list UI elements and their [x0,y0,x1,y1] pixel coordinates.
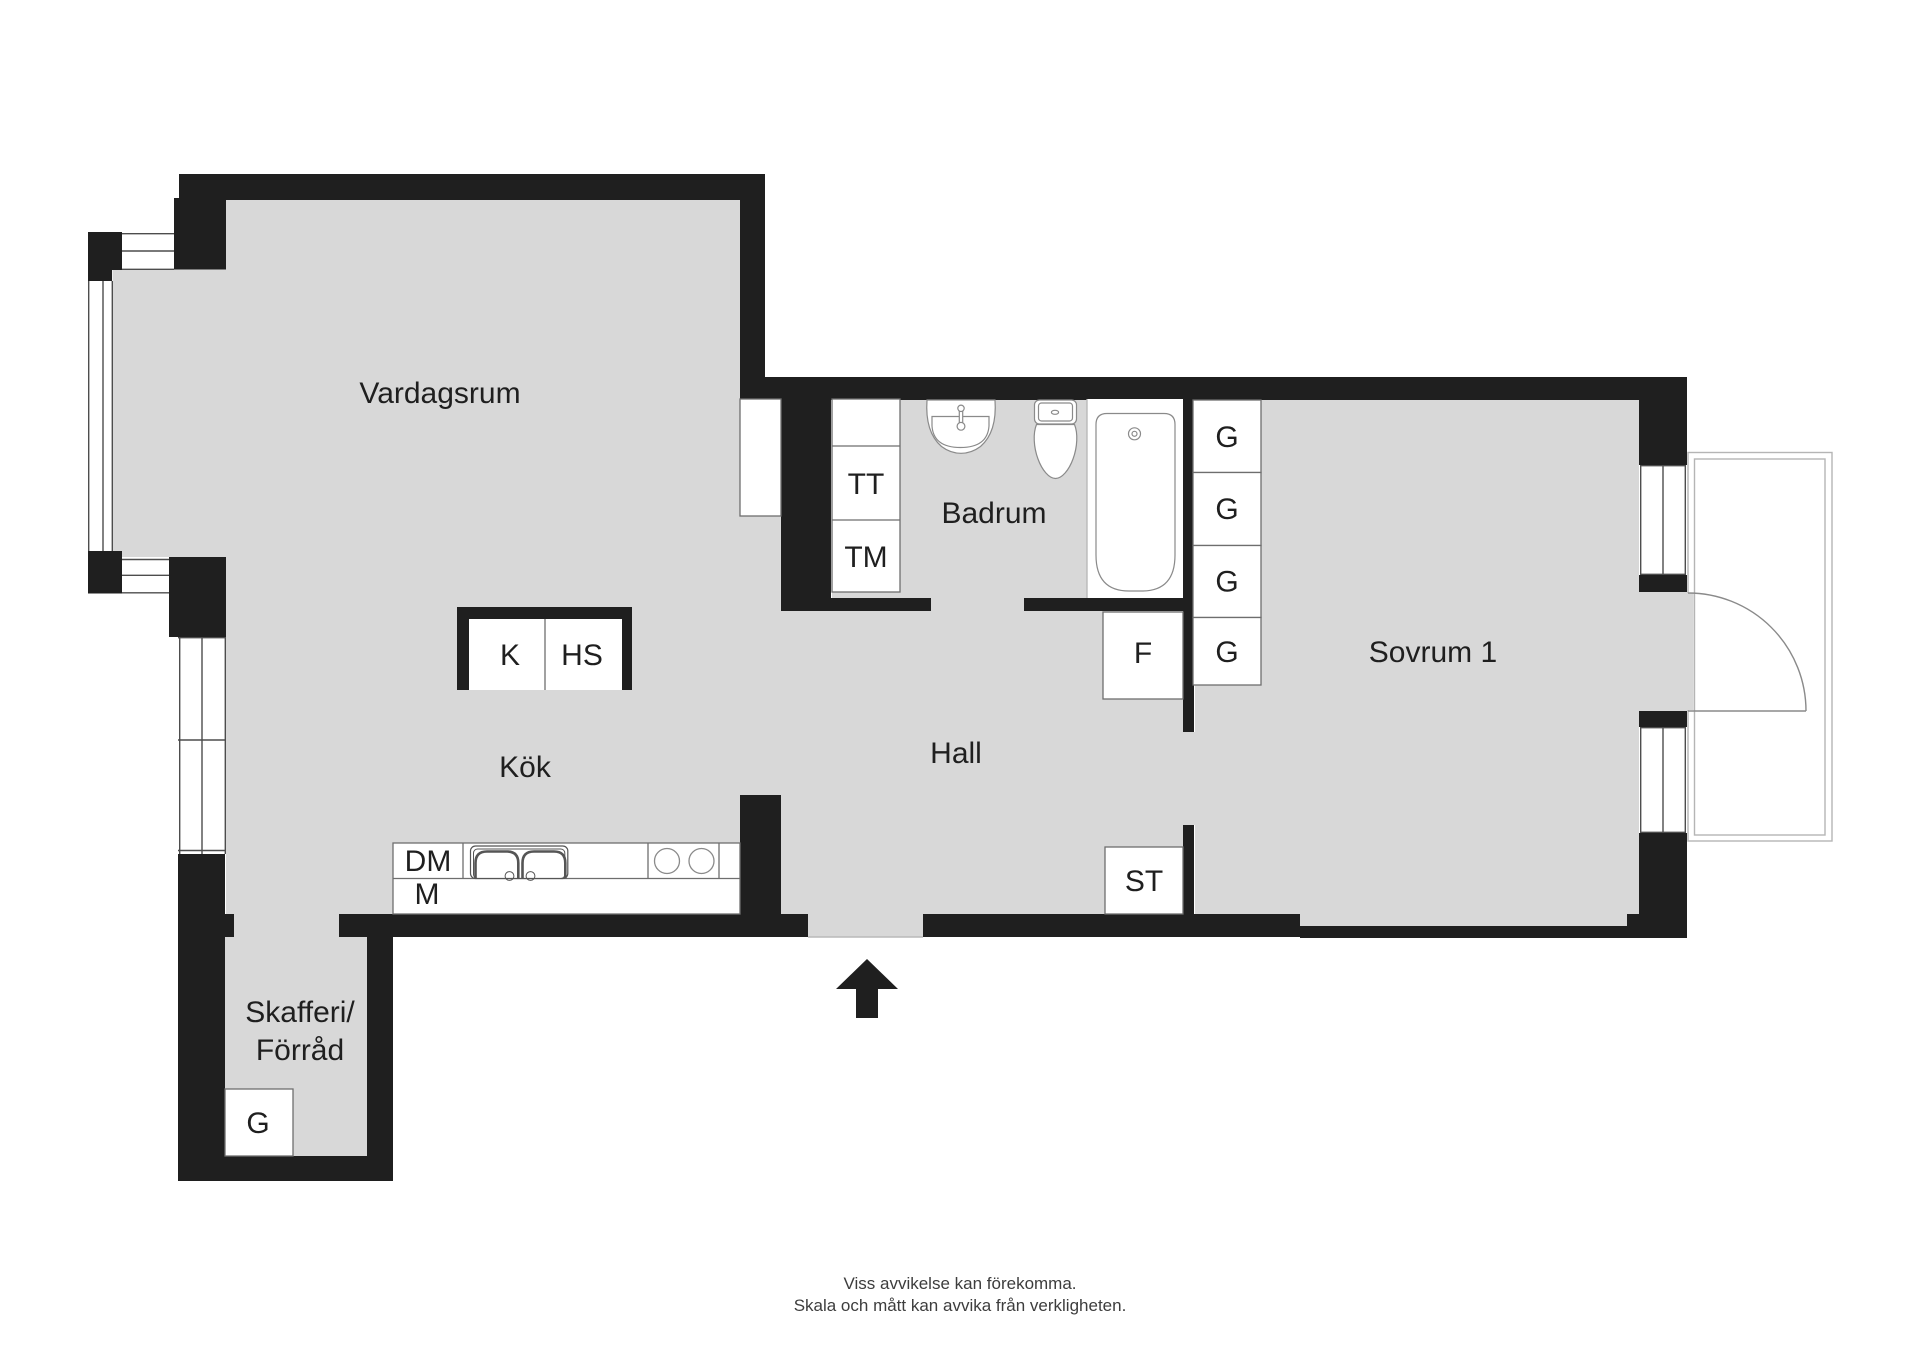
svg-text:Kök: Kök [499,751,552,784]
svg-text:G: G [1215,636,1238,669]
svg-text:Sovrum 1: Sovrum 1 [1369,636,1497,669]
svg-text:Badrum: Badrum [941,497,1046,530]
svg-text:F: F [1134,637,1152,670]
svg-text:Skala och mått kan avvika från: Skala och mått kan avvika från verklighe… [794,1296,1127,1315]
svg-text:Förråd: Förråd [256,1034,344,1067]
svg-text:HS: HS [561,639,603,672]
svg-text:Skafferi/: Skafferi/ [245,996,355,1029]
svg-text:TM: TM [844,541,887,574]
svg-text:Hall: Hall [930,737,982,770]
svg-text:G: G [1215,566,1238,599]
svg-text:TT: TT [848,468,885,501]
svg-text:G: G [1215,493,1238,526]
svg-text:DM: DM [405,845,452,878]
svg-text:G: G [246,1107,269,1140]
svg-text:G: G [1215,421,1238,454]
svg-text:M: M [415,878,440,911]
svg-text:Viss avvikelse kan förekomma.: Viss avvikelse kan förekomma. [843,1274,1076,1293]
svg-text:Vardagsrum: Vardagsrum [359,377,520,410]
svg-text:K: K [500,639,520,672]
svg-text:ST: ST [1125,865,1163,898]
